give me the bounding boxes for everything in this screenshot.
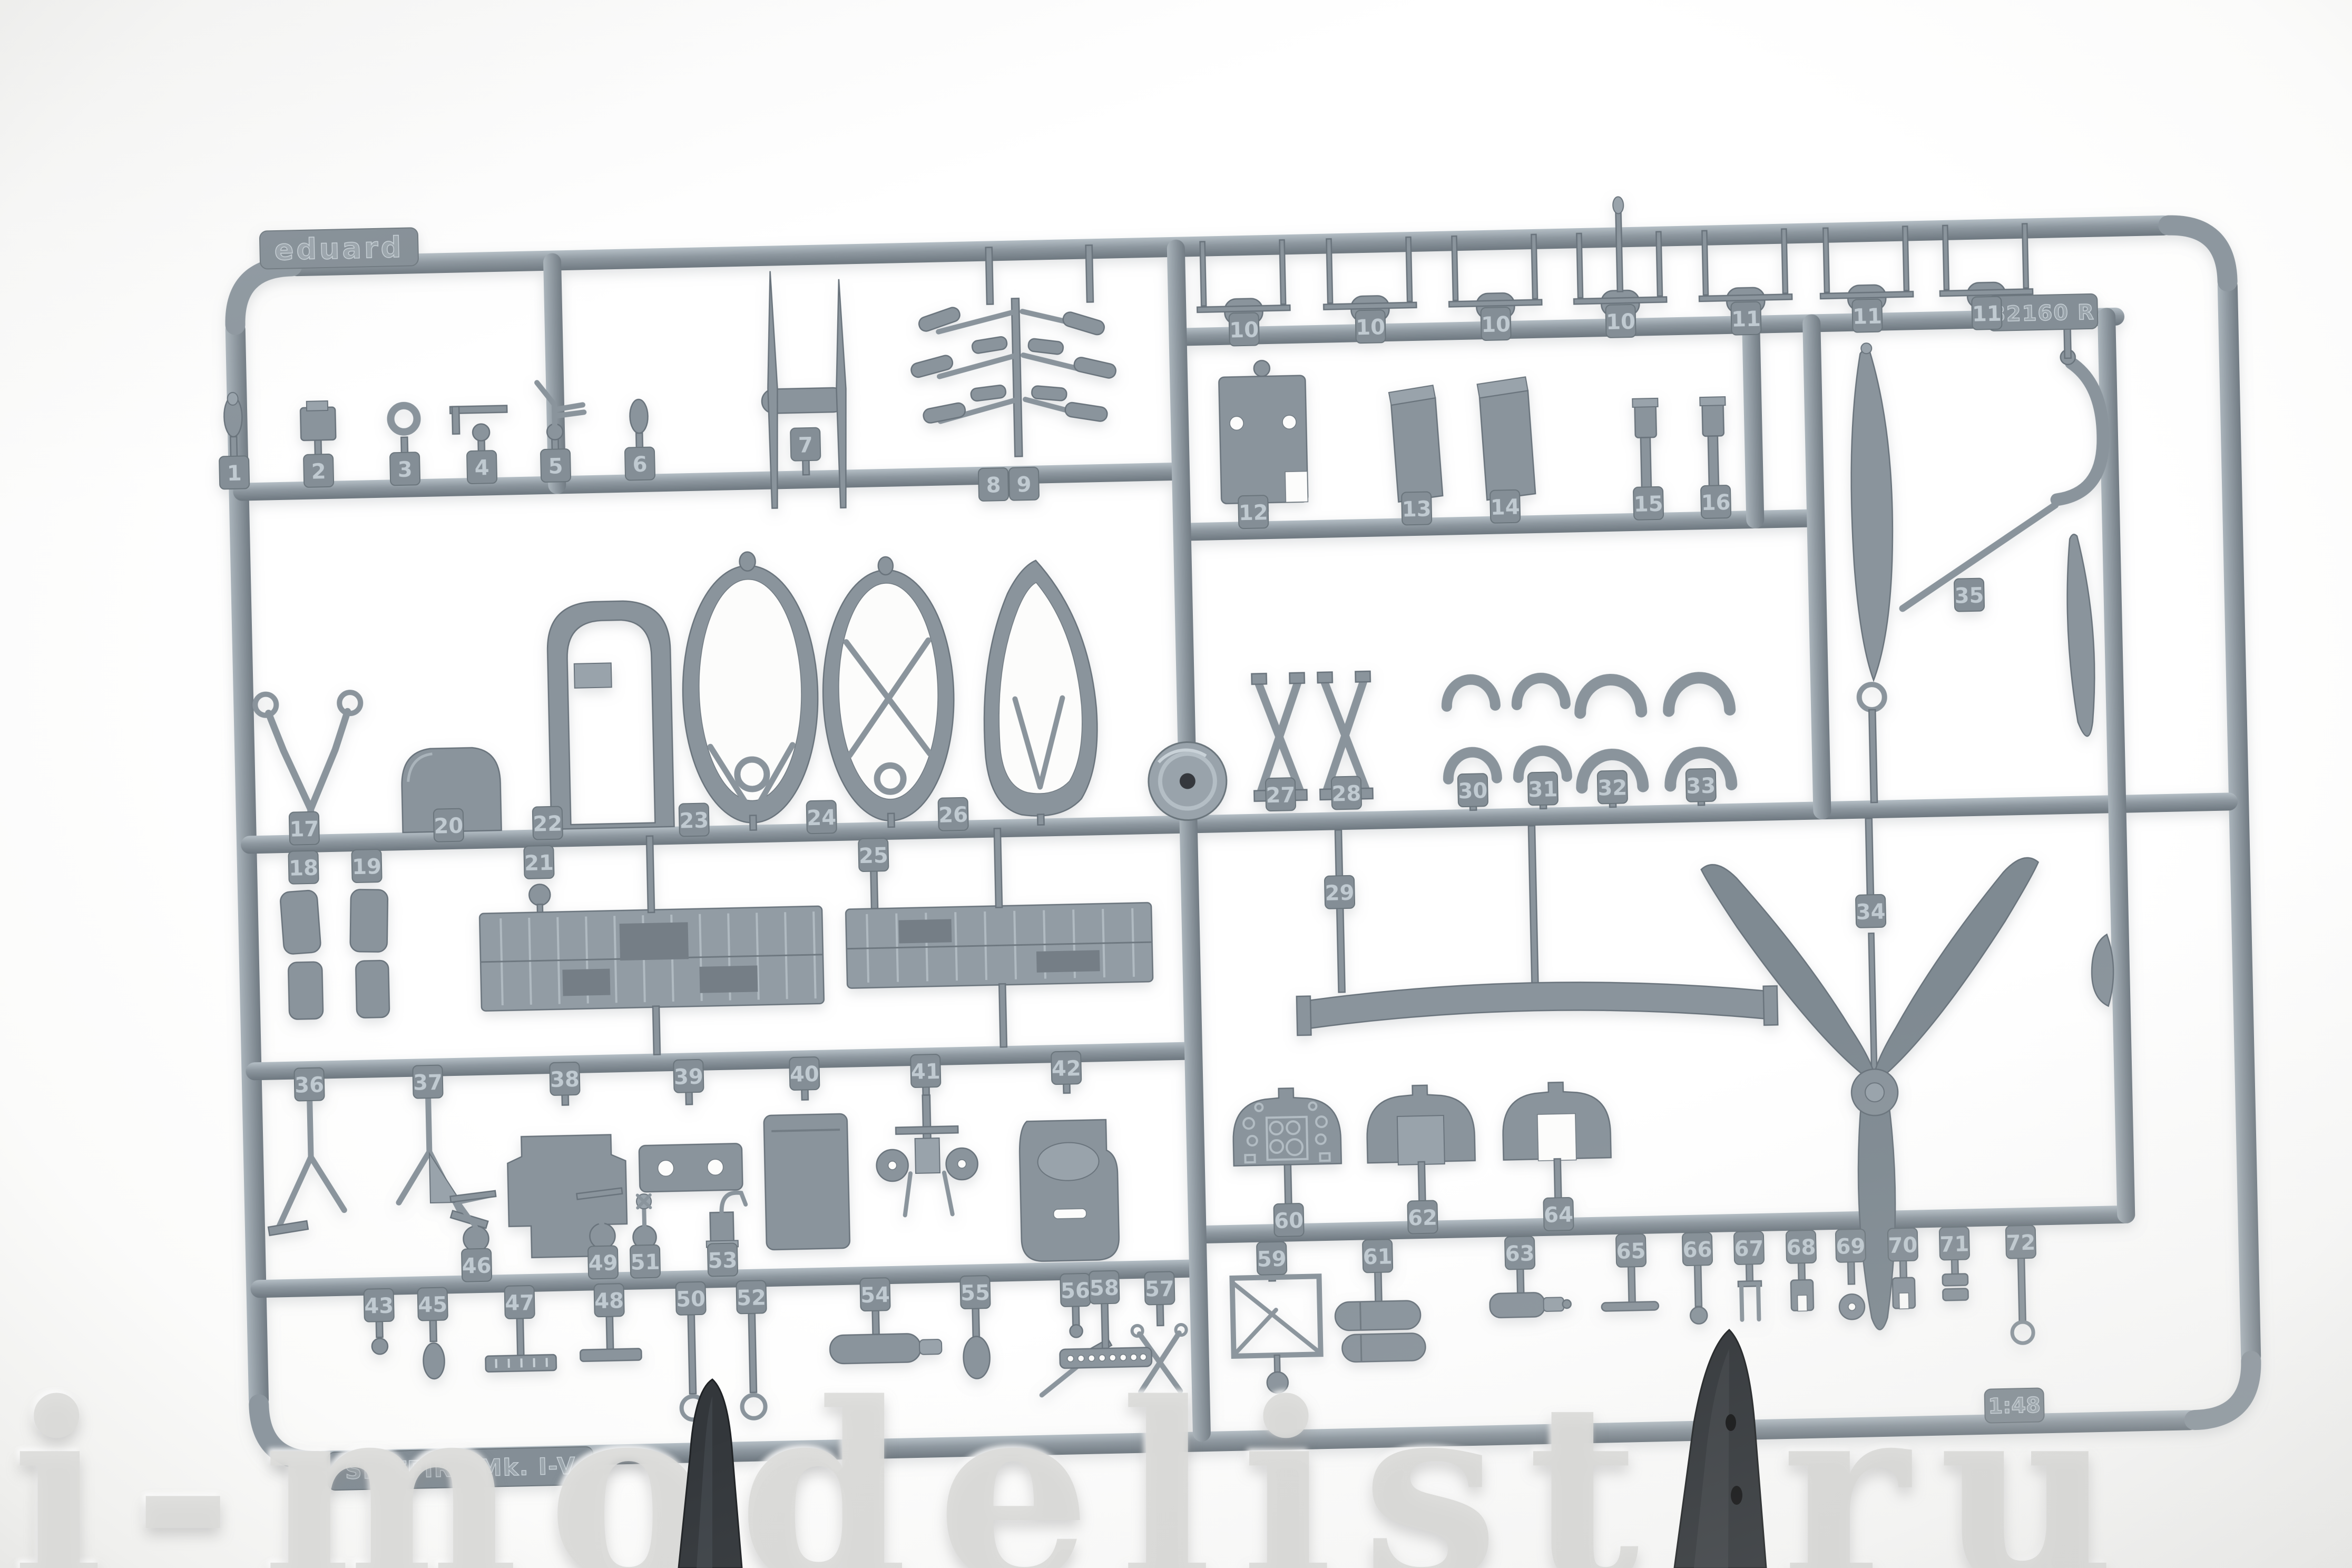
svg-text:36: 36 — [295, 1073, 325, 1097]
part-number-tag: 15 — [1633, 487, 1663, 520]
sprue-code-tag: 82160 R — [1987, 294, 2098, 331]
svg-text:10: 10 — [1356, 315, 1386, 340]
svg-text:31: 31 — [1528, 777, 1558, 802]
svg-text:22: 22 — [533, 811, 563, 836]
part-number-tag: 48 — [594, 1283, 624, 1317]
svg-text:2: 2 — [311, 459, 326, 484]
svg-text:11: 11 — [1972, 302, 2002, 327]
svg-text:3: 3 — [397, 457, 413, 482]
sprue-photo: eduard 82160 R SPITFIRE Mk. I-V 1:48 123… — [0, 0, 2352, 1568]
svg-text:8: 8 — [986, 473, 1001, 498]
svg-text:46: 46 — [462, 1254, 492, 1279]
part-number-tag: 64 — [1543, 1198, 1573, 1231]
part-number-tag: 70 — [1888, 1228, 1918, 1261]
svg-text:43: 43 — [364, 1294, 394, 1319]
sprue-code-label: 82160 R — [1990, 300, 2095, 327]
part-number-tag: 58 — [1089, 1271, 1119, 1304]
part-number-tag: 51 — [630, 1245, 660, 1278]
svg-text:25: 25 — [859, 844, 889, 868]
part-number-tag: 10 — [1229, 312, 1259, 346]
part-number-tag: 14 — [1490, 490, 1520, 523]
svg-text:11: 11 — [1731, 307, 1761, 332]
svg-text:35: 35 — [1954, 583, 1984, 608]
part-number-tag: 1 — [219, 456, 249, 489]
part-number-tag: 19 — [351, 849, 381, 883]
svg-text:1: 1 — [227, 462, 242, 486]
part-number-tag: 21 — [524, 846, 554, 879]
svg-text:10: 10 — [1229, 318, 1259, 342]
part-number-tag: 34 — [1856, 895, 1886, 928]
svg-text:39: 39 — [674, 1065, 704, 1090]
svg-text:50: 50 — [676, 1287, 706, 1312]
scale-tag-label: 1:48 — [1988, 1393, 2041, 1418]
part-number-tag: 6 — [625, 447, 655, 480]
sprue-frame: eduard 82160 R SPITFIRE Mk. I-V 1:48 123… — [0, 0, 2352, 1568]
part-number-tag: 62 — [1407, 1200, 1437, 1233]
part-number-tag: 13 — [1402, 492, 1432, 525]
svg-text:65: 65 — [1616, 1239, 1646, 1264]
part-number-tag: 45 — [418, 1287, 448, 1320]
svg-text:26: 26 — [938, 803, 968, 828]
svg-text:37: 37 — [413, 1071, 443, 1095]
part-number-tag: 17 — [289, 812, 319, 845]
svg-text:18: 18 — [289, 856, 319, 881]
ejector-disc — [1148, 741, 1227, 821]
part-number-tag: 53 — [708, 1243, 738, 1276]
svg-text:9: 9 — [1016, 473, 1032, 497]
part-number-tag: 56 — [1060, 1273, 1090, 1307]
kit-name-tag: SPITFIRE Mk. I-V — [327, 1446, 593, 1490]
svg-text:45: 45 — [418, 1292, 448, 1317]
svg-text:27: 27 — [1266, 783, 1296, 808]
svg-text:40: 40 — [790, 1062, 820, 1087]
svg-text:16: 16 — [1701, 491, 1731, 515]
svg-text:38: 38 — [550, 1067, 580, 1092]
part-number-tag: 3 — [390, 452, 420, 485]
svg-text:32: 32 — [1598, 776, 1628, 800]
part-number-tag: 65 — [1616, 1234, 1646, 1267]
svg-text:13: 13 — [1402, 497, 1432, 522]
part-number-tag: 31 — [1528, 772, 1558, 805]
part-number-tag: 11 — [1852, 299, 1882, 332]
part-number-tag: 69 — [1836, 1229, 1866, 1262]
part-number-tag: 10 — [1355, 310, 1385, 343]
svg-text:72: 72 — [2006, 1231, 2036, 1256]
brand-tag-label: eduard — [274, 231, 404, 267]
part-number-tag: 30 — [1458, 773, 1488, 807]
part-number-tag: 72 — [2006, 1226, 2036, 1259]
kit-name-label: SPITFIRE Mk. I-V — [345, 1453, 576, 1485]
svg-text:30: 30 — [1458, 779, 1488, 803]
svg-text:42: 42 — [1051, 1056, 1081, 1081]
svg-text:21: 21 — [524, 851, 554, 876]
svg-text:61: 61 — [1363, 1244, 1393, 1269]
part-number-tag: 46 — [462, 1249, 492, 1282]
scale-tag: 1:48 — [1984, 1388, 2044, 1423]
part-number-tag: 28 — [1331, 776, 1361, 809]
svg-text:28: 28 — [1331, 781, 1361, 806]
svg-text:4: 4 — [474, 456, 489, 481]
svg-text:58: 58 — [1090, 1276, 1120, 1301]
part-number-tag: 4 — [467, 450, 497, 484]
part-number-tag: 7 — [790, 428, 820, 461]
svg-text:10: 10 — [1481, 312, 1511, 337]
part-number-tag: 11 — [1731, 302, 1761, 335]
part-number-tag: 42 — [1051, 1051, 1081, 1084]
part-number-tag: 40 — [789, 1057, 819, 1090]
part-number-tag: 9 — [1009, 467, 1039, 501]
part-number-tag: 63 — [1505, 1236, 1535, 1269]
part-number-tag: 55 — [960, 1276, 990, 1309]
part-number-tag: 37 — [413, 1065, 443, 1099]
part-number-tag: 12 — [1238, 495, 1268, 528]
part-number-tag: 10 — [1605, 305, 1635, 338]
part-number-tag: 57 — [1144, 1271, 1174, 1305]
part-number-tag: 68 — [1786, 1230, 1816, 1263]
part-number-tag: 71 — [1939, 1227, 1969, 1260]
part-number-tag: 52 — [736, 1280, 766, 1314]
part-number-tag: 16 — [1701, 485, 1731, 518]
svg-text:70: 70 — [1888, 1233, 1918, 1258]
part-number-tag: 24 — [807, 800, 837, 834]
svg-text:59: 59 — [1257, 1247, 1287, 1272]
part-number-tag: 54 — [860, 1278, 890, 1311]
svg-text:24: 24 — [807, 806, 837, 830]
part-number-tag: 43 — [364, 1289, 394, 1322]
svg-text:52: 52 — [737, 1286, 767, 1310]
svg-text:14: 14 — [1490, 495, 1520, 520]
svg-text:55: 55 — [961, 1281, 991, 1306]
svg-text:29: 29 — [1325, 881, 1355, 906]
part-number-tag: 35 — [1954, 578, 1984, 611]
svg-text:11: 11 — [1853, 305, 1883, 329]
part-number-tag: 27 — [1266, 778, 1296, 811]
svg-text:12: 12 — [1238, 501, 1268, 525]
svg-text:69: 69 — [1836, 1234, 1866, 1259]
part-number-tag: 26 — [938, 798, 968, 831]
part-number-tag: 67 — [1734, 1231, 1764, 1265]
part-number-tag: 2 — [303, 454, 334, 487]
svg-text:48: 48 — [594, 1289, 624, 1314]
part-number-tag: 5 — [541, 449, 571, 482]
part-number-tag: 49 — [588, 1246, 618, 1279]
svg-text:54: 54 — [860, 1283, 890, 1308]
part-number-tag: 66 — [1682, 1232, 1712, 1266]
svg-text:66: 66 — [1682, 1238, 1712, 1262]
svg-text:56: 56 — [1061, 1279, 1091, 1304]
part-number-tag: 60 — [1273, 1203, 1304, 1237]
svg-text:41: 41 — [910, 1060, 940, 1084]
part-number-tag: 50 — [675, 1282, 705, 1315]
part-number-tag: 20 — [434, 809, 464, 842]
svg-text:62: 62 — [1408, 1206, 1438, 1230]
part-number-tag: 23 — [679, 803, 709, 836]
svg-text:71: 71 — [1939, 1232, 1969, 1257]
svg-text:19: 19 — [352, 855, 382, 879]
svg-text:20: 20 — [434, 814, 464, 839]
part-number-tag: 38 — [550, 1062, 580, 1095]
part-number-tag: 41 — [910, 1054, 940, 1087]
svg-text:53: 53 — [708, 1248, 738, 1273]
part-number-tag: 32 — [1598, 770, 1628, 803]
svg-text:64: 64 — [1544, 1203, 1574, 1228]
part-number-tag: 22 — [533, 806, 563, 839]
svg-text:34: 34 — [1856, 900, 1886, 925]
brand-tag: eduard — [260, 228, 418, 269]
svg-text:49: 49 — [588, 1251, 618, 1276]
part-number-tag: 25 — [858, 838, 888, 871]
svg-text:15: 15 — [1633, 492, 1663, 517]
part-number-tag: 8 — [978, 468, 1008, 501]
part-number-tag: 10 — [1481, 307, 1511, 340]
svg-text:51: 51 — [630, 1250, 660, 1275]
svg-text:57: 57 — [1145, 1277, 1175, 1301]
part-number-tag: 61 — [1363, 1239, 1393, 1272]
part-number-tag: 59 — [1257, 1242, 1287, 1275]
svg-text:67: 67 — [1734, 1237, 1764, 1261]
svg-text:17: 17 — [289, 817, 319, 842]
svg-text:68: 68 — [1786, 1236, 1816, 1260]
svg-text:7: 7 — [798, 433, 813, 458]
part-number-tag: 36 — [294, 1067, 324, 1101]
part-number-tag: 33 — [1686, 769, 1716, 802]
svg-text:23: 23 — [679, 808, 709, 833]
part-number-tag: 29 — [1325, 876, 1355, 909]
part-number-tag: 18 — [288, 851, 318, 884]
svg-text:33: 33 — [1686, 774, 1716, 799]
svg-text:60: 60 — [1274, 1209, 1304, 1233]
part-number-tag: 39 — [673, 1060, 703, 1093]
part-number-tag: 11 — [1972, 297, 2002, 330]
svg-text:10: 10 — [1606, 310, 1636, 335]
svg-text:6: 6 — [632, 453, 648, 477]
svg-text:5: 5 — [548, 454, 563, 479]
svg-text:47: 47 — [505, 1291, 535, 1316]
svg-text:63: 63 — [1505, 1241, 1535, 1266]
part-number-tag: 47 — [504, 1286, 534, 1319]
